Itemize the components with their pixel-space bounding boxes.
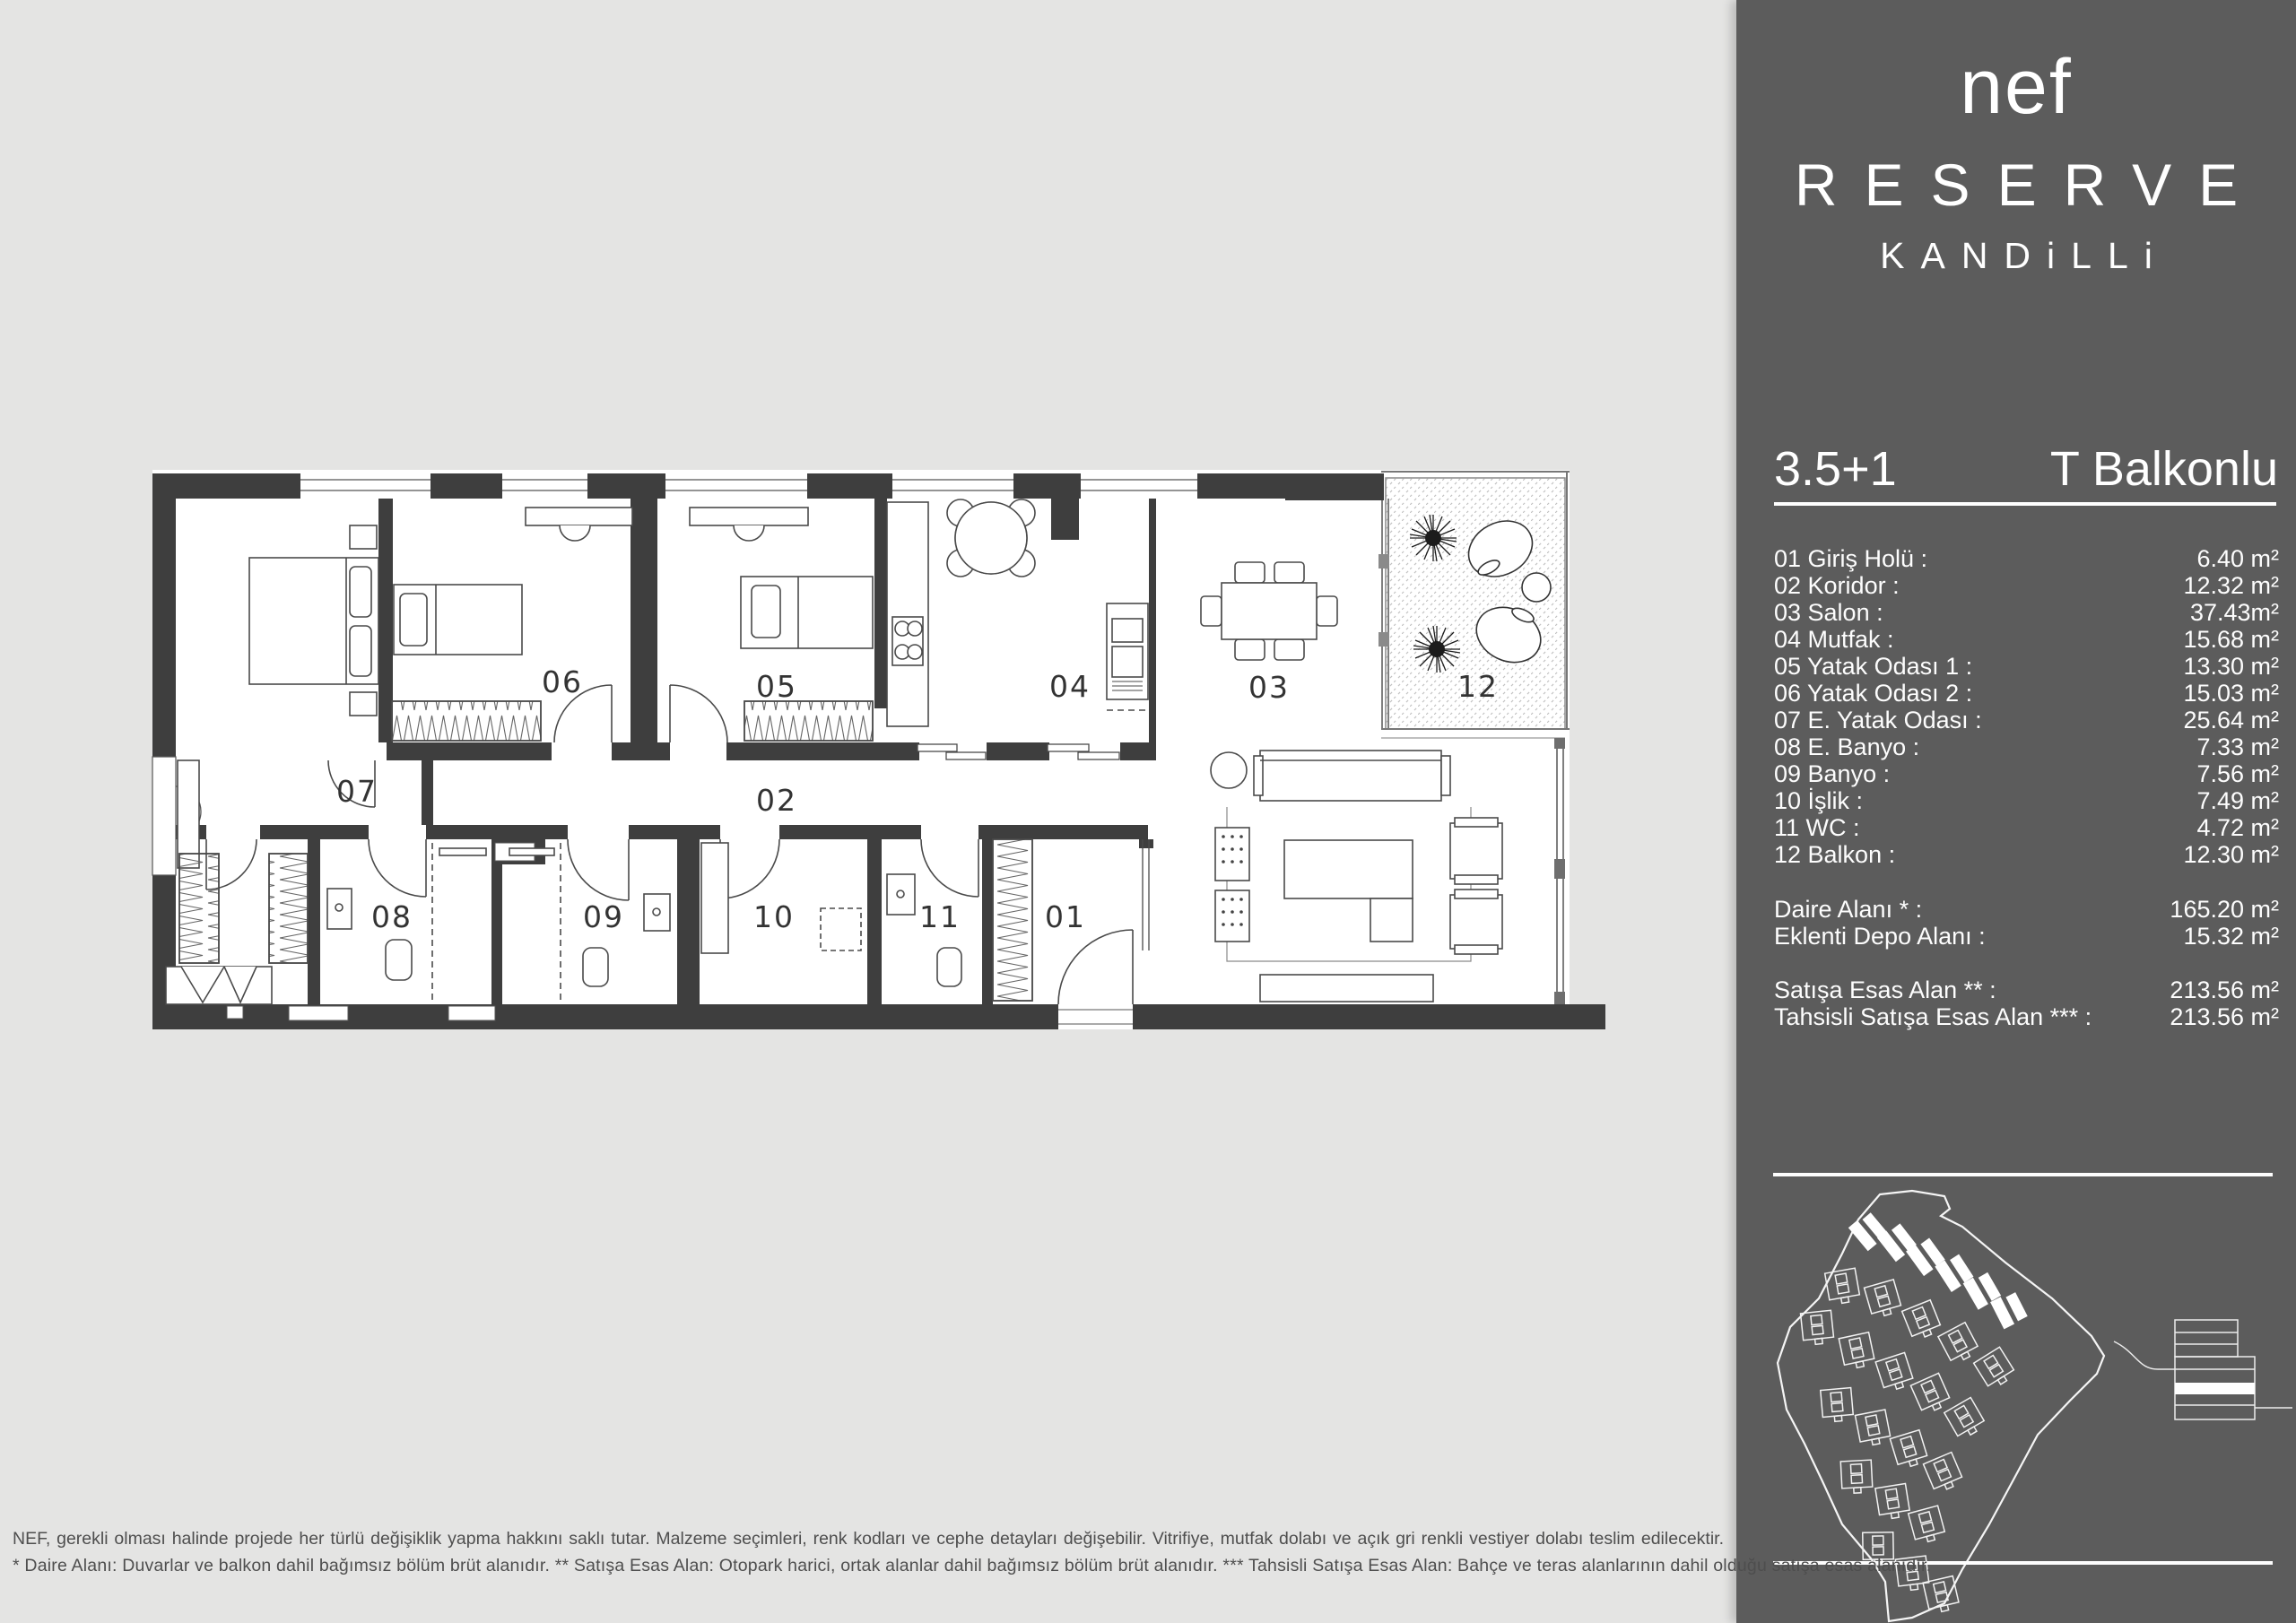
area-row: 05 Yatak Odası 1 :13.30 m²: [1774, 653, 2279, 680]
disclaimer: NEF, gerekli olması halinde projede her …: [13, 1525, 1724, 1579]
label-room-03: 03: [1248, 670, 1290, 705]
area-row: 07 E. Yatak Odası :25.64 m²: [1774, 707, 2279, 733]
area-row: Daire Alanı * :165.20 m²: [1774, 896, 2279, 923]
area-row: Satışa Esas Alan ** :213.56 m²: [1774, 976, 2279, 1003]
brand-name: RESERVE: [1736, 151, 2296, 219]
area-row: 01 Giriş Holü :6.40 m²: [1774, 545, 2279, 572]
label-room-05: 05: [756, 669, 797, 704]
label-room-04: 04: [1049, 669, 1091, 704]
site-buildings-highlighted: [1848, 1211, 2028, 1329]
room-area-list: 01 Giriş Holü :6.40 m² 02 Koridor :12.32…: [1774, 545, 2279, 868]
disclaimer-line-2: * Daire Alanı: Duvarlar ve balkon dahil …: [13, 1552, 1724, 1579]
area-row: Tahsisli Satışa Esas Alan *** :213.56 m²: [1774, 1003, 2279, 1030]
label-room-10: 10: [753, 899, 795, 934]
label-room-09: 09: [583, 899, 624, 934]
unit-variant: T Balkonlu: [2050, 441, 2278, 497]
label-room-06: 06: [542, 664, 583, 699]
area-row: 08 E. Banyo :7.33 m²: [1774, 733, 2279, 760]
building-elevation: [2114, 1320, 2292, 1419]
area-row: 12 Balkon :12.30 m²: [1774, 841, 2279, 868]
floor-plan: 01 02 03 04 05 06 07 08 09 10 11 12: [135, 448, 1623, 1058]
area-row: 10 İşlik :7.49 m²: [1774, 787, 2279, 814]
label-room-02: 02: [756, 783, 797, 818]
info-sidebar: nef RESERVE KANDiLLi 3.5+1 T Balkonlu 01…: [1736, 0, 2296, 1623]
area-row: 11 WC :4.72 m²: [1774, 814, 2279, 841]
unit-header-rule: [1774, 502, 2276, 506]
brand-location: KANDiLLi: [1736, 235, 2296, 277]
area-row: Eklenti Depo Alanı :15.32 m²: [1774, 923, 2279, 950]
label-room-08: 08: [371, 899, 413, 934]
disclaimer-line-1: NEF, gerekli olması halinde projede her …: [13, 1525, 1724, 1552]
totals-list: Daire Alanı * :165.20 m² Eklenti Depo Al…: [1774, 896, 2279, 950]
area-row: 03 Salon :37.43m²: [1774, 599, 2279, 626]
label-room-12: 12: [1457, 669, 1499, 704]
label-room-11: 11: [919, 899, 961, 934]
label-room-01: 01: [1045, 899, 1086, 934]
area-row: 04 Mutfak :15.68 m²: [1774, 626, 2279, 653]
sales-area-list: Satışa Esas Alan ** :213.56 m² Tahsisli …: [1774, 976, 2279, 1030]
area-row: 06 Yatak Odası 2 :15.03 m²: [1774, 680, 2279, 707]
area-row: 02 Koridor :12.32 m²: [1774, 572, 2279, 599]
brand-logo: nef: [1736, 43, 2296, 132]
unit-type: 3.5+1: [1774, 441, 1897, 497]
label-room-07: 07: [336, 774, 378, 809]
area-row: 09 Banyo :7.56 m²: [1774, 760, 2279, 787]
unit-header: 3.5+1 T Balkonlu: [1774, 441, 2278, 497]
entry-threshold: [1058, 1004, 1133, 1029]
site-plan: [1736, 1148, 2292, 1623]
